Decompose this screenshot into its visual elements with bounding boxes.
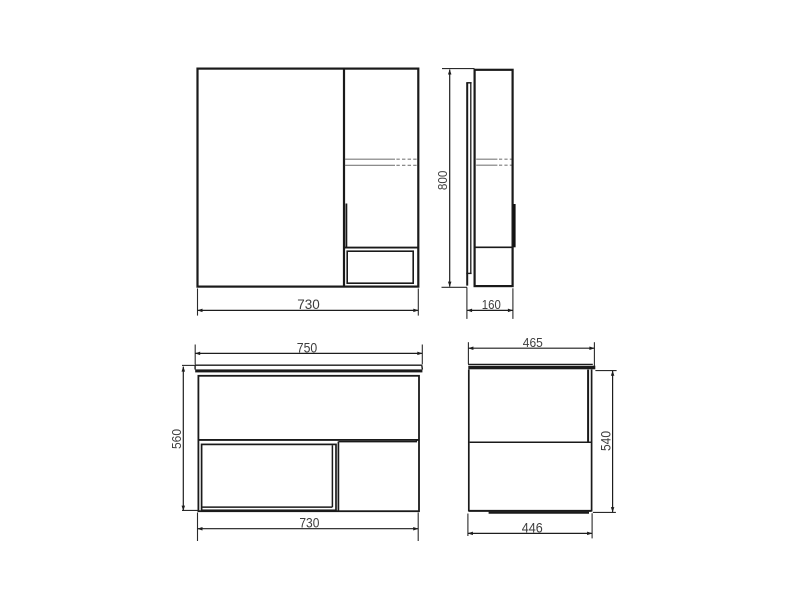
svg-text:465: 465 [523, 335, 543, 350]
svg-text:160: 160 [482, 297, 501, 312]
svg-text:446: 446 [522, 521, 543, 536]
svg-text:800: 800 [436, 171, 450, 191]
svg-text:730: 730 [299, 514, 319, 530]
svg-text:730: 730 [297, 297, 320, 312]
svg-text:560: 560 [170, 429, 184, 449]
svg-text:540: 540 [598, 431, 613, 451]
svg-text:750: 750 [297, 341, 318, 356]
